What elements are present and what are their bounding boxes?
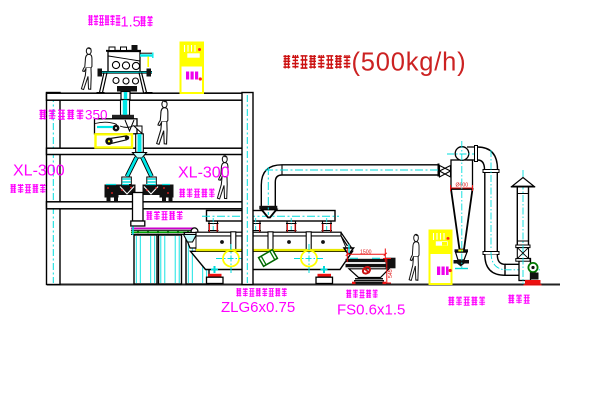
svg-text:ZLG6x0.75: ZLG6x0.75: [221, 299, 295, 316]
svg-text:FS0.6x1.5: FS0.6x1.5: [337, 302, 405, 319]
svg-text:XL-300: XL-300: [13, 163, 65, 180]
svg-text:1500: 1500: [360, 249, 372, 255]
svg-text:1.5: 1.5: [121, 15, 141, 31]
svg-text:545: 545: [388, 269, 394, 278]
svg-text:XL-300: XL-300: [178, 165, 230, 182]
svg-text:(500kg/h): (500kg/h): [352, 49, 467, 77]
svg-text:350: 350: [85, 108, 108, 123]
